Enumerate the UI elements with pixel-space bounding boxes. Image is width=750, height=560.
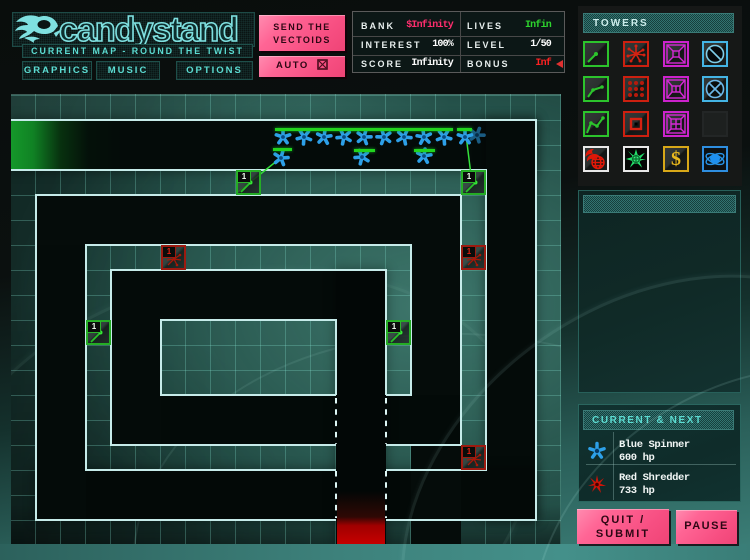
svg-text:candystand: candystand xyxy=(59,12,238,48)
